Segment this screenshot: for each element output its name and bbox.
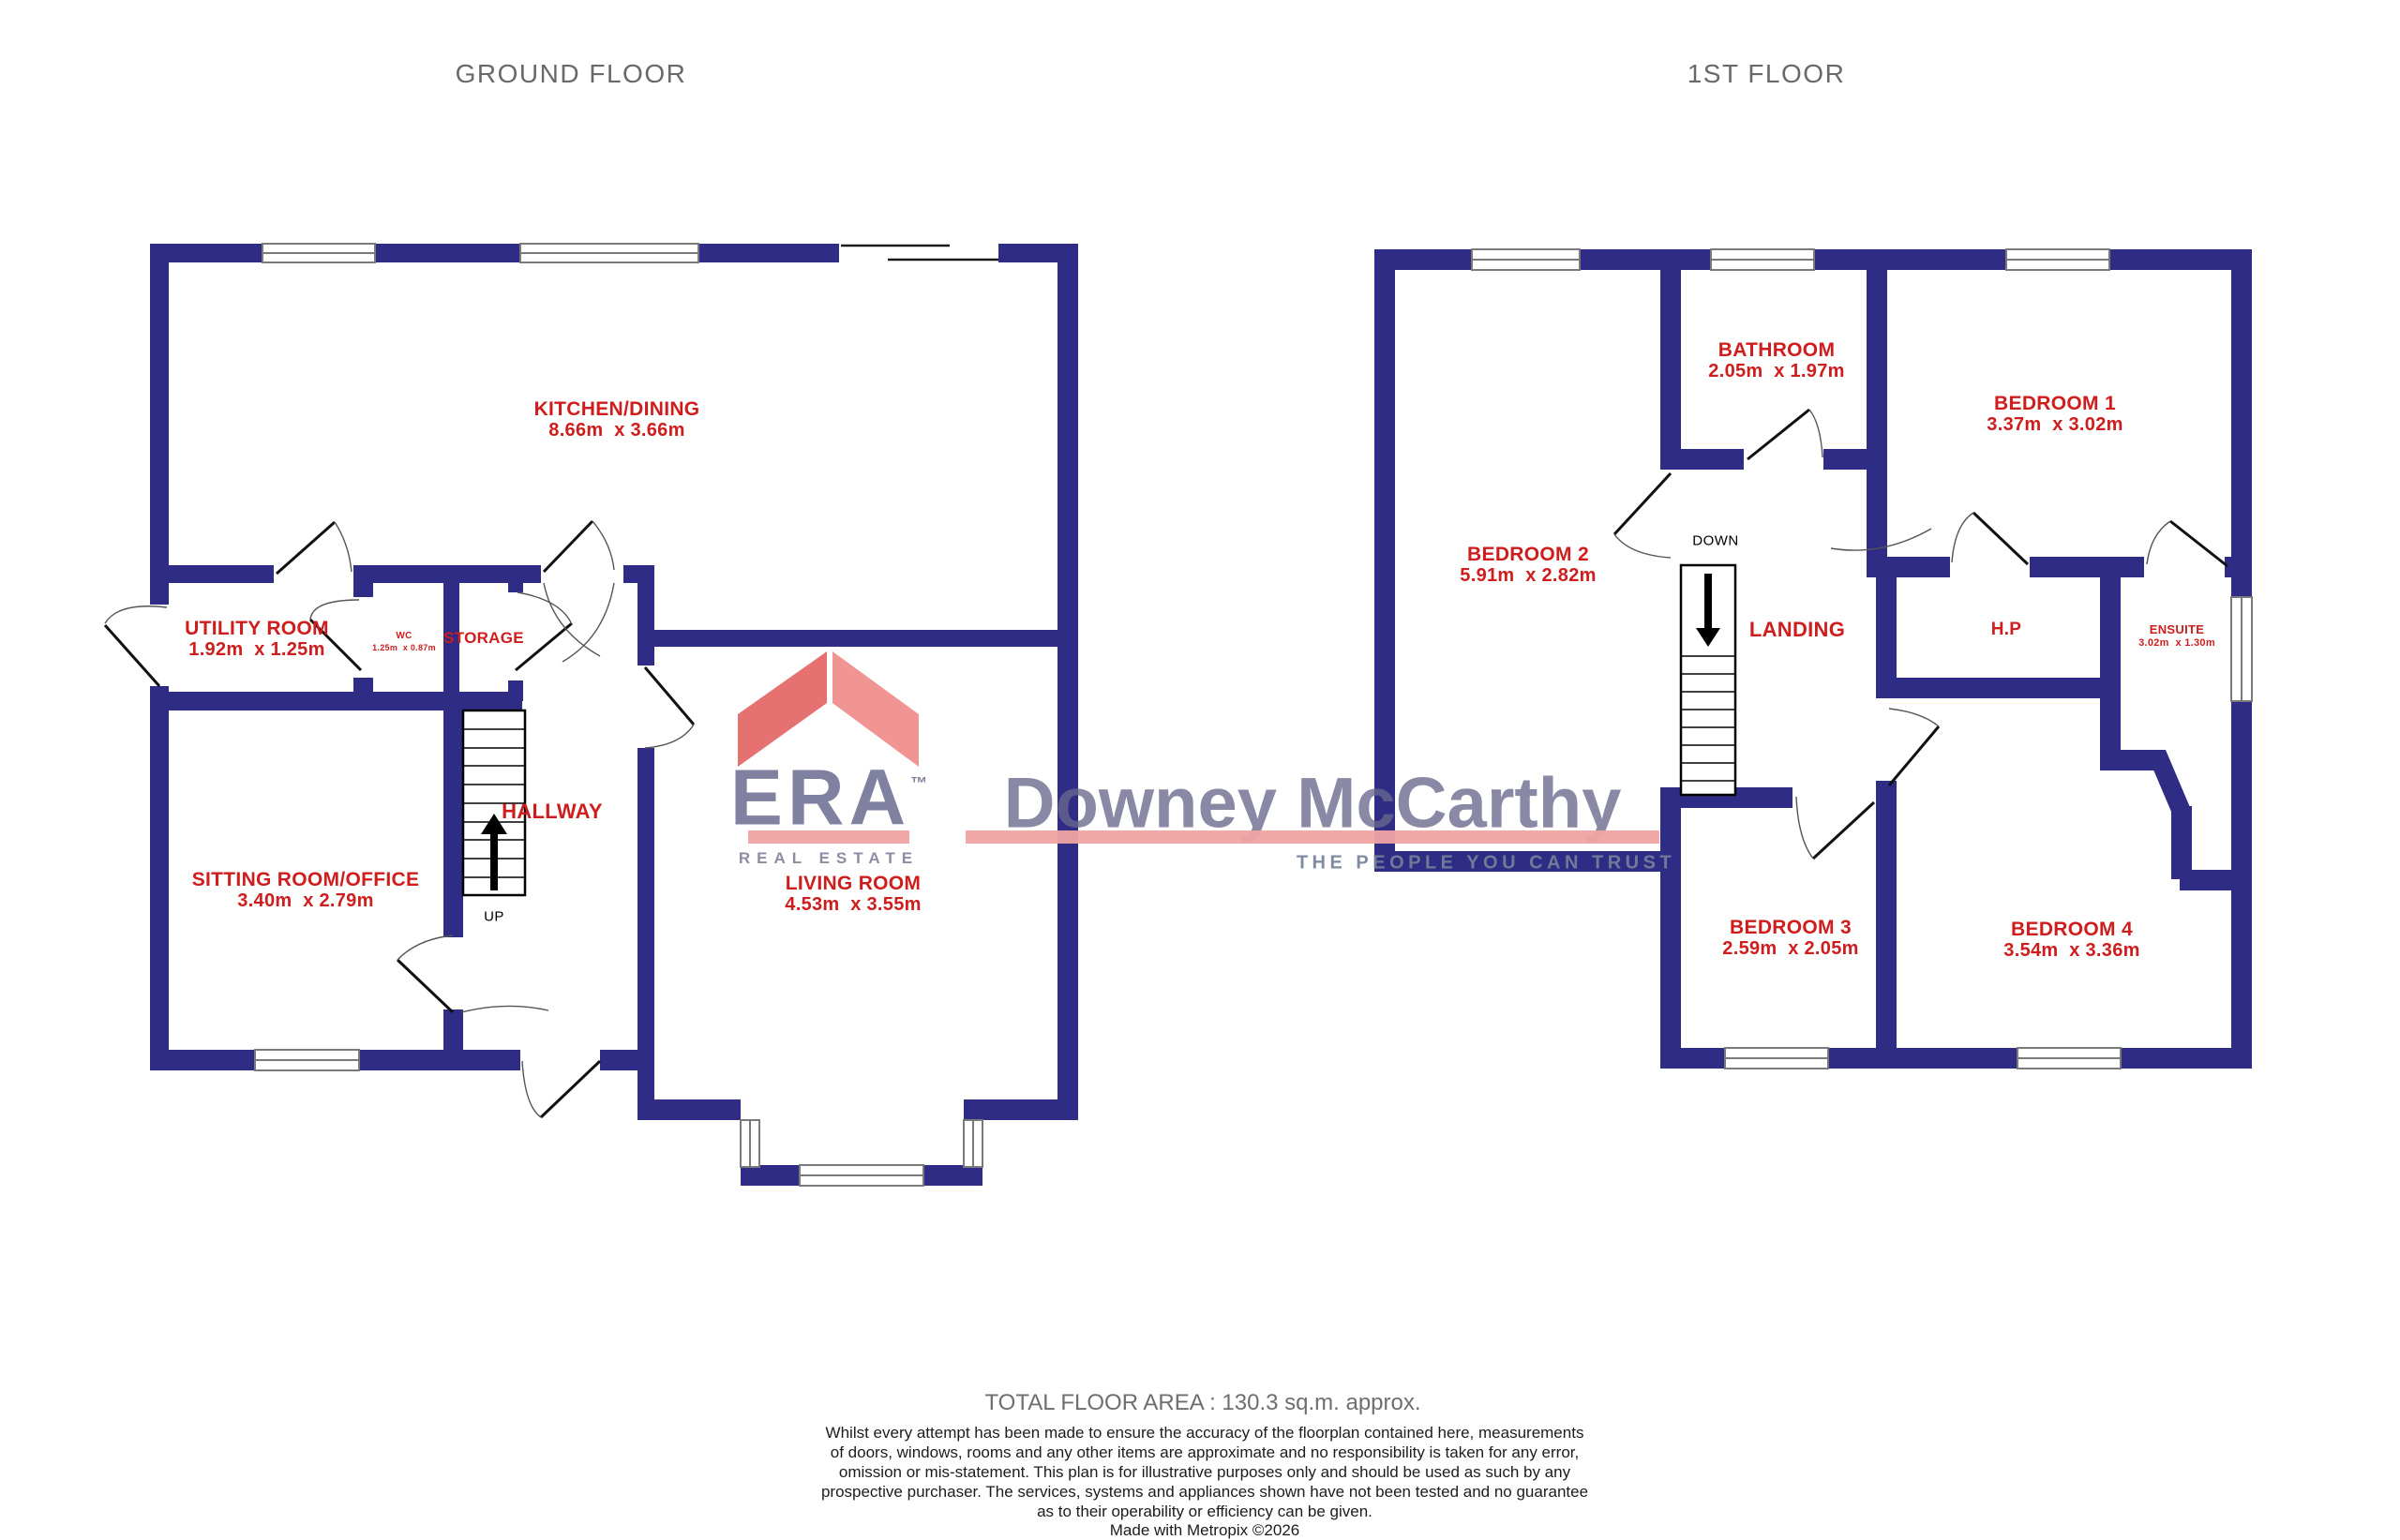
windows xyxy=(255,244,2252,1186)
stairs-up xyxy=(463,710,525,895)
floorplan-canvas: ERA™ REAL ESTATE Downey McCarthy THE PEO… xyxy=(0,0,2400,1527)
era-real-estate-text: REAL ESTATE xyxy=(739,849,919,868)
ground-floor-walls xyxy=(150,244,1078,1186)
agency-underline-bar xyxy=(966,830,1659,844)
agency-tagline-text: THE PEOPLE YOU CAN TRUST xyxy=(1297,853,1675,875)
era-roof-icon xyxy=(738,651,919,767)
trademark-icon: ™ xyxy=(910,774,927,793)
era-underline-bar xyxy=(748,830,909,844)
stairs-down xyxy=(1681,565,1735,795)
first-floor-walls xyxy=(1374,249,2252,1069)
kitchen-opening-lines xyxy=(841,246,998,260)
era-logo-text: ERA™ xyxy=(730,753,927,844)
